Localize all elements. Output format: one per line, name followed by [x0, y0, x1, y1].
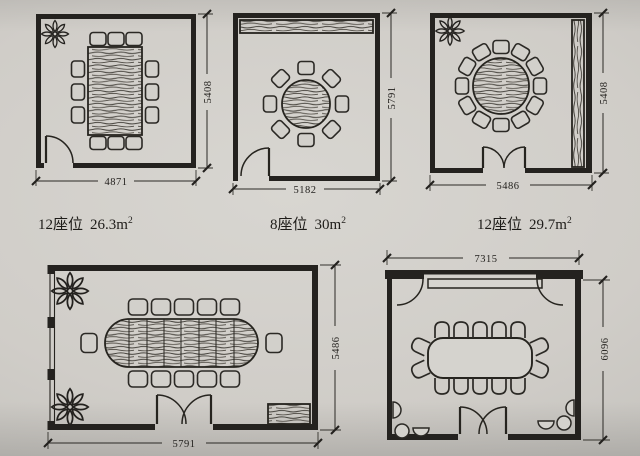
caption-plan-3: 12座位29.7m2 — [477, 216, 572, 233]
flower-plant-icon — [42, 21, 69, 48]
corner-service-items-left — [393, 402, 429, 438]
dim-label: 4871 — [105, 177, 128, 188]
dim-label: 6096 — [600, 338, 611, 361]
plan-8-seat-round-room: 5182 5791 8座位30m2 — [229, 9, 398, 233]
double-door-swing-icon — [483, 147, 525, 168]
dim-label: 5182 — [294, 185, 317, 196]
stool-bowl-icon — [557, 416, 571, 430]
cabinet-wood-icon — [268, 404, 310, 424]
stool-bowl-icon — [566, 400, 574, 416]
console-table — [428, 279, 542, 288]
flower-plant-icon — [436, 17, 464, 45]
flower-plant-icon — [52, 273, 88, 309]
scanned-floor-plan-page: 4871 5408 12座位26.3m2 — [0, 0, 640, 456]
dim-label: 5408 — [203, 81, 214, 104]
round-dining-table — [473, 58, 529, 114]
dimension-width: 5791 — [44, 432, 322, 450]
stool-bowl-icon — [395, 424, 409, 438]
double-door-swing-icon — [157, 395, 211, 424]
dimension-width: 5486 — [426, 175, 596, 192]
dimension-width: 4871 — [32, 170, 200, 188]
dimension-height: 6096 — [583, 276, 611, 444]
oval-dining-table — [105, 319, 258, 367]
door-swing-icon — [241, 148, 269, 176]
round-dining-table — [282, 80, 330, 128]
flower-plant-icon — [52, 389, 88, 425]
rect-dining-table — [88, 47, 142, 135]
door-swing-icon — [46, 136, 73, 163]
sideboard-wood-icon — [572, 20, 584, 167]
caption-plan-1: 12座位26.3m2 — [38, 216, 133, 233]
plan-12-seat-round-room: 5486 5408 12座位29.7m2 — [426, 9, 610, 233]
dimension-width: 7315 — [383, 250, 583, 265]
sideboard-wood-icon — [240, 20, 373, 33]
dim-label: 5486 — [331, 337, 342, 360]
plan-rect-table-alcove-room: 7315 — [383, 250, 611, 444]
plan-oval-table-room: 5791 5486 — [44, 261, 342, 450]
stool-bowl-icon — [538, 421, 554, 429]
dimension-height: 5408 — [594, 9, 610, 177]
dim-label: 7315 — [475, 254, 498, 265]
dimension-width: 5182 — [229, 183, 384, 196]
plan-12-seat-rect-room: 4871 5408 12座位26.3m2 — [32, 10, 214, 233]
dim-label: 5486 — [497, 181, 520, 192]
dim-label: 5791 — [173, 439, 196, 450]
stool-bowl-icon — [393, 402, 401, 418]
rect-meeting-table — [428, 338, 532, 378]
dim-label: 5408 — [599, 82, 610, 105]
corner-service-items-right — [538, 400, 574, 430]
floor-plans-figure: 4871 5408 12座位26.3m2 — [0, 0, 640, 456]
dimension-height: 5791 — [382, 9, 398, 185]
dimension-height: 5486 — [320, 261, 342, 434]
caption-plan-2: 8座位30m2 — [270, 216, 346, 233]
dim-label: 5791 — [387, 87, 398, 110]
double-door-swing-icon — [460, 407, 506, 434]
dimension-height: 5408 — [198, 10, 214, 172]
